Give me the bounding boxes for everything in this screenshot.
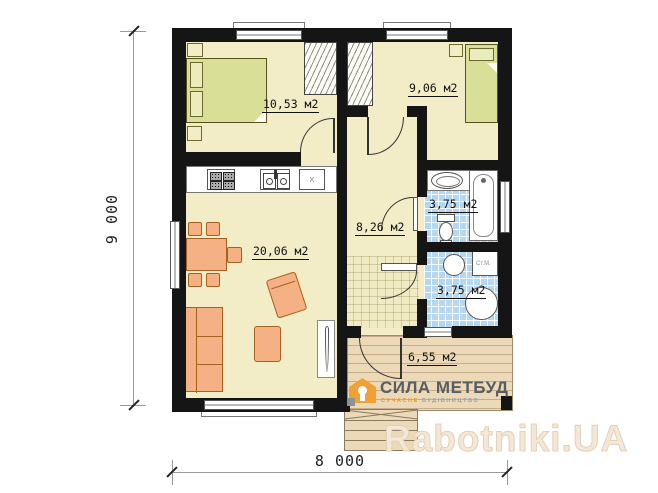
bathroom-top-wall	[424, 160, 498, 170]
bedroom2-window	[386, 30, 448, 40]
builder-name: СИЛА МЕТБУД	[380, 378, 508, 398]
bedroom2-wall	[407, 106, 427, 117]
horizontal-dimension-line	[172, 472, 508, 473]
bedroom2-wall	[340, 106, 368, 117]
central-wall	[337, 42, 347, 398]
height-dimension: 9 000	[103, 189, 121, 249]
terrace-area-label: 6,55 м2	[407, 351, 457, 366]
dining-chair	[227, 247, 242, 263]
sofa	[184, 307, 223, 392]
vertical-dimension-line	[133, 30, 134, 407]
bathroom-area-label: 3,75 м2	[428, 198, 478, 213]
living-bottom-window	[204, 400, 314, 410]
coffee-table	[254, 326, 281, 362]
terrace-door-panel	[317, 320, 335, 378]
dining-chair	[206, 273, 220, 287]
washbasin	[431, 172, 463, 189]
floor-plan: x Ст.М.	[0, 0, 658, 493]
nightstand	[449, 44, 463, 57]
wardrobe	[347, 42, 373, 106]
builder-logo: СИЛА МЕТБУД СУЧАСНЕ БУДІВНИЦТВО	[346, 368, 516, 408]
kitchen-sink	[260, 169, 290, 190]
bedroom1-wall	[186, 152, 301, 166]
laundry-window	[424, 327, 452, 337]
portal-watermark: Rabotniki.UA	[384, 418, 628, 460]
bathroom-door-leaf	[413, 197, 418, 231]
single-bed	[465, 44, 498, 123]
dining-chair	[188, 273, 202, 287]
builder-tagline-1: СУЧАСНЕ	[381, 398, 419, 404]
bedroom2-area-label: 9,06 м2	[408, 82, 458, 97]
dining-table	[186, 238, 227, 271]
laundry-door-leaf	[381, 263, 417, 271]
living-area-label: 20,06 м2	[252, 245, 309, 260]
living-left-window	[170, 221, 180, 289]
laundry-area-label: 3,75 м2	[436, 284, 486, 299]
refrigerator: x	[299, 169, 325, 190]
dining-chair	[188, 222, 202, 236]
dining-chair	[206, 222, 220, 236]
hall-bottom-wall	[347, 326, 361, 338]
washing-machine: Ст.М.	[472, 251, 498, 276]
stove	[207, 169, 235, 190]
hall-area-label: 8,26 м2	[355, 221, 405, 236]
toilet	[436, 214, 456, 244]
appliance-mark: x	[309, 175, 314, 185]
washing-machine-label: Ст.М.	[476, 261, 491, 267]
bedroom1-area-label: 10,53 м2	[262, 98, 319, 113]
double-bed	[186, 58, 267, 123]
laundry-bottom-wall	[452, 326, 512, 338]
builder-tagline-2: БУДІВНИЦТВО	[422, 398, 479, 404]
bedside-cabinet	[187, 126, 202, 141]
outer-wall-top	[172, 28, 512, 42]
outer-wall-left	[172, 28, 186, 412]
hall-wall	[417, 117, 427, 197]
bathroom-window	[500, 181, 510, 233]
bath-laundry-wall	[424, 242, 498, 252]
bedroom1-window	[236, 30, 302, 40]
wardrobe	[304, 42, 337, 95]
width-dimension: 8 000	[300, 452, 380, 470]
bedroom1-door-leaf	[333, 118, 335, 153]
laundry-sink	[443, 254, 465, 276]
nightstand	[187, 43, 203, 57]
